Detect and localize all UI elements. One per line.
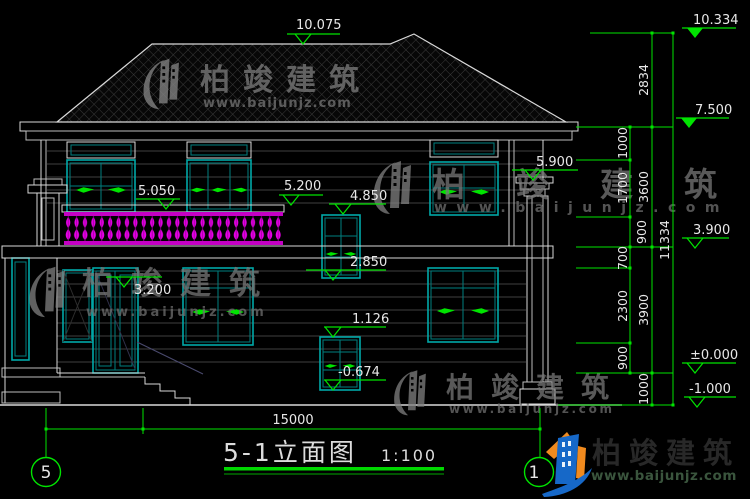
watermark-logo-icon — [394, 370, 426, 415]
watermark-brand: 柏竣建筑 — [200, 63, 372, 98]
brand-logo: 柏竣建筑 www.baijunjz.com — [542, 432, 740, 497]
watermark-url: www.baijunjz.com — [449, 402, 615, 416]
watermark-brand: 柏竣建筑 — [446, 371, 626, 404]
dimension-chain-right: 1000 1700 900 700 2300 900 2834 3600 390… — [558, 32, 675, 407]
balcony-pillar — [28, 179, 67, 246]
watermark-logo-icon — [374, 161, 411, 214]
grid-bubble-5: 5 — [32, 458, 61, 487]
dim-2834: 2834 — [636, 64, 651, 96]
level-label-eave-right: 5.900 — [536, 155, 573, 170]
dim-900-lower: 900 — [615, 346, 630, 370]
watermark-url: www.baijunjz.com — [86, 305, 267, 320]
drawing-scale: 1:100 — [381, 446, 437, 465]
level-label-ridge: 10.075 — [296, 18, 342, 33]
brand-logo-icon — [542, 432, 592, 497]
cad-elevation-canvas: 柏竣建筑 www.baijunjz.com 柏竣建筑 www.baijunjz.… — [0, 0, 750, 499]
level-label-second-eave: 7.500 — [695, 103, 732, 118]
level-label-wall: 5.200 — [284, 179, 321, 194]
dim-900-upper: 900 — [634, 220, 649, 244]
grid-bubble-1: 1 — [525, 458, 554, 487]
watermark-brand: 柏竣建筑 — [432, 165, 750, 204]
level-label-basewin-bottom: -0.674 — [338, 365, 380, 380]
level-label-stair-bottom: 2.850 — [350, 255, 387, 270]
title-block: 5-1立面图 1:100 — [223, 438, 444, 474]
level-label-stair-top: 4.850 — [350, 189, 387, 204]
level-label-ground: ±0.000 — [690, 348, 738, 363]
watermark-url: www.baijunjz.com — [203, 96, 352, 111]
grid-bubble-5-label: 5 — [41, 463, 52, 483]
dim-1000-top: 1000 — [615, 127, 630, 159]
grid-bubble-1-label: 1 — [529, 463, 540, 483]
level-label-basewin-top: 1.126 — [352, 312, 389, 327]
level-label-first-ceiling: 3.900 — [693, 223, 730, 238]
dim-15000: 15000 — [272, 413, 313, 428]
level-label-porch: 3.200 — [134, 283, 171, 298]
dim-2300: 2300 — [615, 290, 630, 322]
dim-11334: 11334 — [657, 220, 672, 260]
level-label-site: -1.000 — [689, 382, 731, 397]
dim-700: 700 — [615, 246, 630, 270]
elevation-drawing: 柏竣建筑 www.baijunjz.com 柏竣建筑 www.baijunjz.… — [0, 0, 750, 499]
window-1f-right — [428, 268, 498, 342]
title-underline — [224, 467, 444, 471]
dim-1700: 1700 — [615, 172, 630, 204]
dim-3900: 3900 — [636, 294, 651, 326]
dim-3600: 3600 — [636, 171, 651, 203]
level-label-rooftop: 10.334 — [693, 13, 739, 28]
level-label-balcony: 5.050 — [138, 184, 175, 199]
drawing-title: 5-1立面图 — [223, 438, 357, 467]
watermark-brand: 柏竣建筑 — [82, 266, 278, 302]
stairs — [57, 342, 205, 405]
watermark-url: www.baijunjz.com — [434, 200, 729, 216]
brand-name: 柏竣建筑 — [592, 436, 740, 470]
watermark-bottom: 柏竣建筑 www.baijunjz.com — [394, 370, 626, 416]
eave-cornice — [20, 122, 578, 140]
brand-url: www.baijunjz.com — [591, 468, 737, 484]
dim-1000-bottom: 1000 — [636, 373, 651, 405]
